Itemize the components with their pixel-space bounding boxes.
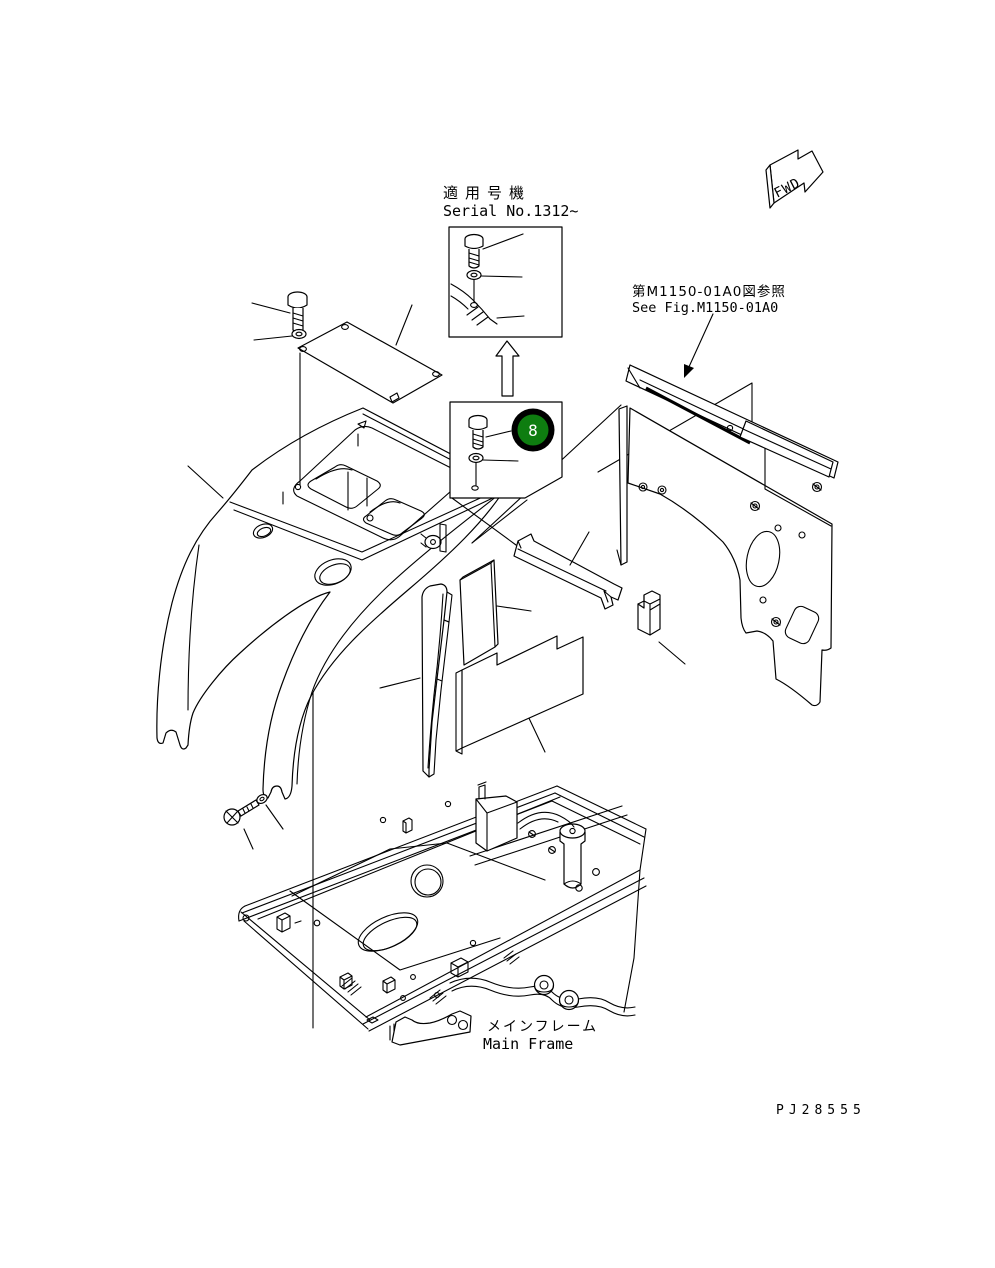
callout-pillar: [380, 678, 420, 688]
serial-label-en: Serial No.1312~: [443, 202, 578, 220]
drawing-code: PJ28555: [776, 1103, 866, 1118]
main-frame-label-en: Main Frame: [483, 1035, 573, 1053]
callout-stepped-block: [659, 642, 685, 664]
callout-heat-guard: [497, 606, 531, 611]
callout-spacer-bar: [570, 532, 589, 565]
stepped-block-drawing: [638, 591, 660, 635]
see-fig-arrow: [684, 314, 713, 378]
balloon-number: 8: [528, 421, 538, 440]
callout-lower-panel: [527, 714, 545, 752]
mount-bolt-lower: [224, 793, 283, 849]
see-fig-label-en: See Fig.M1150-01A0: [632, 300, 778, 316]
parts-diagram-page: 8 FWD 適用号機 Serial No.1312~ 第M1150-01A0図参…: [0, 0, 995, 1268]
up-arrow: [496, 341, 519, 396]
fwd-arrow: FWD: [766, 150, 823, 208]
callout-front-cover: [188, 466, 223, 498]
heat-guard-panel-drawing: [460, 560, 498, 665]
main-frame-drawing: [239, 782, 646, 1045]
serial-detail-box: [449, 227, 562, 337]
balloon-8[interactable]: 8: [512, 409, 555, 452]
spacer-bar-drawing: [514, 534, 622, 609]
bolt-upper-left: [252, 292, 307, 340]
side-pillar-drawing: [422, 584, 452, 777]
see-fig-label-jp: 第M1150-01A0図参照: [632, 283, 786, 300]
frame-bolt-dots: [314, 801, 599, 1000]
serial-label-jp: 適用号機: [443, 184, 531, 202]
main-frame-label-jp: メインフレーム: [487, 1019, 598, 1035]
